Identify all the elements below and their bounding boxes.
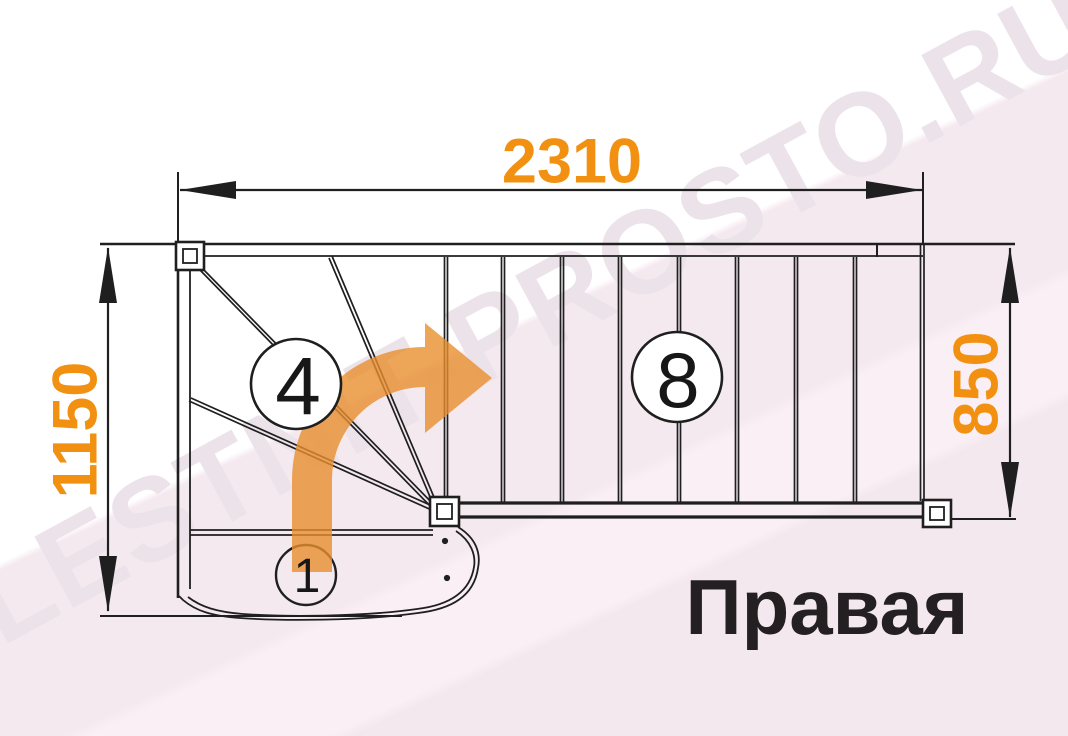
- stair-outline: [100, 243, 1015, 598]
- first-step-number: 1: [294, 553, 321, 601]
- baluster-dots: [442, 538, 450, 581]
- dimension-left-depth: 1150: [45, 362, 108, 499]
- staircase-plan-page: LESTNIT-PROSTO.RU: [0, 0, 1068, 736]
- dimension-right-width: 850: [946, 331, 1009, 436]
- dimension-arrowheads: [99, 181, 1019, 612]
- dimension-extension-lines: [100, 172, 1016, 616]
- winder-step-count: 4: [275, 346, 321, 428]
- straight-step-count: 8: [656, 341, 699, 419]
- dimension-top-width: 2310: [502, 131, 642, 194]
- dimension-lines: [108, 190, 1010, 611]
- plan-caption: Правая: [686, 568, 969, 646]
